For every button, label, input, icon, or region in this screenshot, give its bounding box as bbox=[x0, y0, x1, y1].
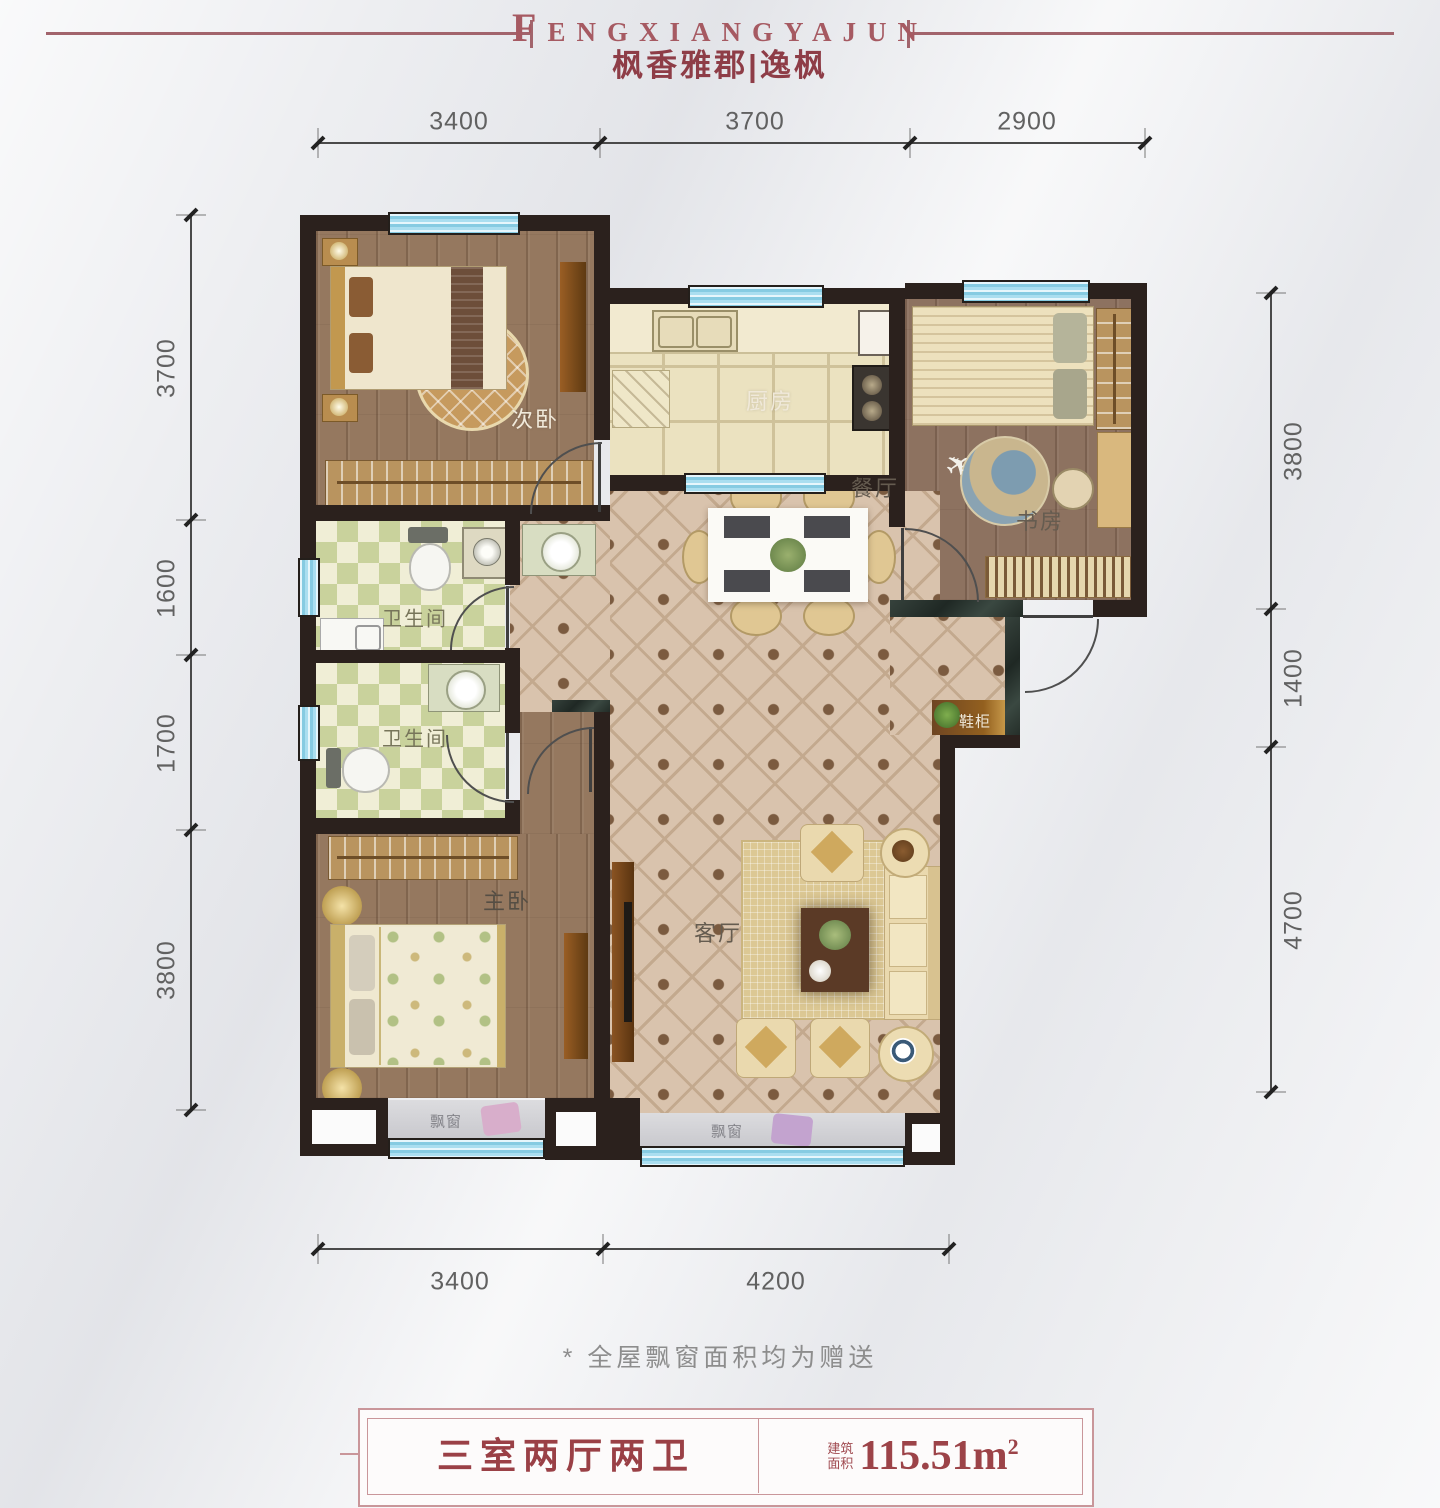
burner bbox=[862, 375, 882, 395]
sofa-cushion bbox=[889, 923, 927, 967]
floral-duvet bbox=[379, 927, 499, 1065]
toilet bbox=[406, 527, 450, 589]
headboard bbox=[331, 925, 345, 1067]
sink-basin bbox=[658, 316, 694, 348]
armchair bbox=[810, 1018, 870, 1078]
area-cell: 建筑 面积 115.51m2 bbox=[765, 1418, 1081, 1493]
armchair bbox=[736, 1018, 796, 1078]
room-label-bathroom1: 卫生间 bbox=[382, 603, 448, 632]
brand-name-cn: 枫香雅郡|逸枫 bbox=[0, 40, 1440, 85]
sofa-cushion bbox=[889, 875, 927, 919]
room-label-dining: 餐厅 bbox=[851, 471, 899, 503]
area-exponent: 2 bbox=[1008, 1434, 1019, 1459]
room-label-bathroom2: 卫生间 bbox=[382, 723, 448, 752]
room-label-master-bedroom: 主卧 bbox=[483, 884, 531, 916]
room-label-living: 客厅 bbox=[694, 916, 742, 948]
nightstand bbox=[322, 238, 358, 266]
headboard bbox=[331, 267, 345, 389]
wall bbox=[1005, 617, 1020, 740]
master-wardrobe bbox=[328, 836, 518, 880]
bay-window-sill-master bbox=[388, 1100, 545, 1140]
wall bbox=[594, 712, 610, 1115]
wall bbox=[300, 818, 520, 834]
bathroom-sink bbox=[320, 618, 384, 654]
fruit-bowl bbox=[892, 840, 914, 862]
lamp bbox=[330, 398, 348, 416]
tv-cabinet bbox=[560, 262, 586, 392]
dim-line bbox=[318, 142, 1145, 144]
plant bbox=[934, 702, 960, 728]
pier-niche bbox=[312, 1110, 376, 1144]
basin bbox=[355, 625, 381, 651]
pillow bbox=[1053, 369, 1087, 419]
pier-niche bbox=[556, 1112, 596, 1146]
bathroom2-sink bbox=[428, 664, 500, 712]
window-bathroom1 bbox=[298, 558, 320, 617]
master-tv-cabinet bbox=[564, 933, 588, 1059]
window-study bbox=[962, 280, 1090, 303]
toilet-tank bbox=[408, 527, 448, 543]
dim-value: 3800 bbox=[1280, 421, 1309, 481]
dim-line bbox=[190, 215, 192, 1110]
bay-pillow bbox=[771, 1113, 814, 1147]
label-bay-window-living: 飘窗 bbox=[711, 1121, 743, 1142]
vanity-basin bbox=[541, 532, 581, 572]
coffee-table bbox=[801, 908, 869, 992]
side-table bbox=[878, 1026, 934, 1082]
dim-line bbox=[1270, 293, 1272, 1092]
dim-value: 1600 bbox=[153, 558, 182, 618]
plate bbox=[890, 1038, 916, 1064]
living-tv-cabinet bbox=[612, 862, 634, 1062]
kitchen-sink bbox=[652, 310, 738, 352]
pillow bbox=[1053, 313, 1087, 363]
area-number: 115.51m bbox=[859, 1433, 1007, 1479]
area-label-line1: 建筑 bbox=[827, 1441, 853, 1456]
dim-value: 2900 bbox=[997, 108, 1057, 137]
bed bbox=[330, 266, 507, 390]
pier-niche bbox=[912, 1124, 940, 1152]
infobar-left-nub bbox=[340, 1453, 358, 1455]
place-setting bbox=[724, 516, 770, 538]
study-door-leaf bbox=[901, 528, 904, 600]
dim-value: 3800 bbox=[153, 940, 182, 1000]
dim-line bbox=[318, 1248, 949, 1250]
pillow bbox=[349, 999, 375, 1055]
sofa bbox=[884, 866, 943, 1020]
side-table bbox=[880, 828, 930, 878]
tatami-bed bbox=[912, 306, 1094, 426]
area-label-line2: 面积 bbox=[827, 1456, 853, 1471]
vanity-counter bbox=[522, 524, 596, 576]
wall bbox=[300, 215, 316, 1115]
dim-value: 3400 bbox=[429, 108, 489, 137]
pillow bbox=[349, 277, 373, 317]
room-label-secondary-bedroom: 次卧 bbox=[511, 402, 559, 434]
wall bbox=[552, 700, 610, 712]
pillow bbox=[349, 333, 373, 373]
cushion bbox=[819, 1026, 861, 1068]
label-bay-window-master: 飘窗 bbox=[430, 1111, 462, 1132]
place-setting bbox=[804, 516, 850, 538]
place-setting bbox=[804, 570, 850, 592]
armchair bbox=[800, 824, 864, 882]
layout-type: 三室两厅两卫 bbox=[367, 1418, 765, 1493]
dining-table bbox=[708, 508, 868, 602]
tv bbox=[624, 902, 632, 1022]
centerpiece bbox=[770, 538, 806, 572]
dim-value: 4700 bbox=[1280, 890, 1309, 950]
nightstand bbox=[322, 394, 358, 422]
label-shoe-cabinet: 鞋柜 bbox=[959, 711, 991, 732]
sofa-cushion bbox=[889, 971, 927, 1015]
bay-window-glass bbox=[640, 1146, 905, 1167]
bay-pillow bbox=[480, 1102, 522, 1137]
footboard bbox=[497, 925, 505, 1067]
wall bbox=[1131, 283, 1147, 617]
stove bbox=[852, 365, 894, 431]
master-bed bbox=[330, 924, 506, 1068]
pillow bbox=[349, 935, 375, 991]
wall bbox=[316, 650, 520, 663]
burner bbox=[862, 401, 882, 421]
info-bar: 三室两厅两卫 建筑 面积 115.51m2 bbox=[358, 1408, 1094, 1507]
wall bbox=[1093, 600, 1147, 617]
kitchen-cabinet bbox=[612, 370, 670, 428]
bed-runner bbox=[451, 267, 483, 389]
footnote: * 全屋飘窗面积均为赠送 bbox=[0, 1338, 1440, 1374]
nightstand-round bbox=[322, 886, 362, 926]
dim-value: 1400 bbox=[1280, 648, 1309, 708]
floorplan-page: { "header": { "brand_en": "FENGXIANGYAJU… bbox=[0, 0, 1440, 1508]
basin bbox=[446, 670, 486, 710]
wall bbox=[940, 748, 955, 1130]
dim-value: 3700 bbox=[153, 338, 182, 398]
wall bbox=[505, 521, 520, 585]
wardrobe-rail bbox=[1113, 314, 1116, 424]
dining-chair bbox=[730, 596, 782, 636]
dim-value: 4200 bbox=[746, 1268, 806, 1297]
lamp bbox=[330, 242, 348, 260]
wall bbox=[940, 735, 1020, 748]
toilet-bowl bbox=[342, 747, 390, 793]
wall bbox=[890, 600, 1023, 617]
window-kitchen bbox=[688, 285, 824, 308]
wall bbox=[594, 215, 610, 440]
sink-basin bbox=[696, 316, 732, 348]
room-label-study: 书房 bbox=[1016, 504, 1064, 536]
study-desk bbox=[1097, 432, 1132, 528]
washer-drum bbox=[473, 538, 501, 566]
toilet-tank bbox=[326, 748, 341, 788]
table-plant bbox=[819, 920, 851, 950]
entry-door-leaf bbox=[1023, 615, 1093, 618]
dim-value: 1700 bbox=[153, 713, 182, 773]
dim-value: 3700 bbox=[725, 108, 785, 137]
room-label-kitchen: 厨房 bbox=[746, 384, 794, 416]
cushion bbox=[811, 831, 853, 873]
window-bathroom2 bbox=[298, 705, 320, 761]
toilet-bowl bbox=[409, 543, 451, 591]
area-label: 建筑 面积 bbox=[827, 1441, 853, 1471]
place-setting bbox=[724, 570, 770, 592]
bookshelf bbox=[985, 556, 1133, 598]
dim-value: 3400 bbox=[430, 1268, 490, 1297]
kitchen-glass-door bbox=[684, 473, 826, 494]
window-secondary-bedroom bbox=[388, 212, 520, 235]
bay-window-glass bbox=[388, 1138, 545, 1159]
table-plate bbox=[809, 960, 831, 982]
area-value: 115.51m2 bbox=[859, 1432, 1018, 1480]
cushion bbox=[745, 1026, 787, 1068]
wardrobe-rail bbox=[337, 856, 510, 859]
toilet bbox=[326, 745, 388, 791]
dining-chair bbox=[803, 596, 855, 636]
study-wardrobe bbox=[1096, 308, 1132, 430]
